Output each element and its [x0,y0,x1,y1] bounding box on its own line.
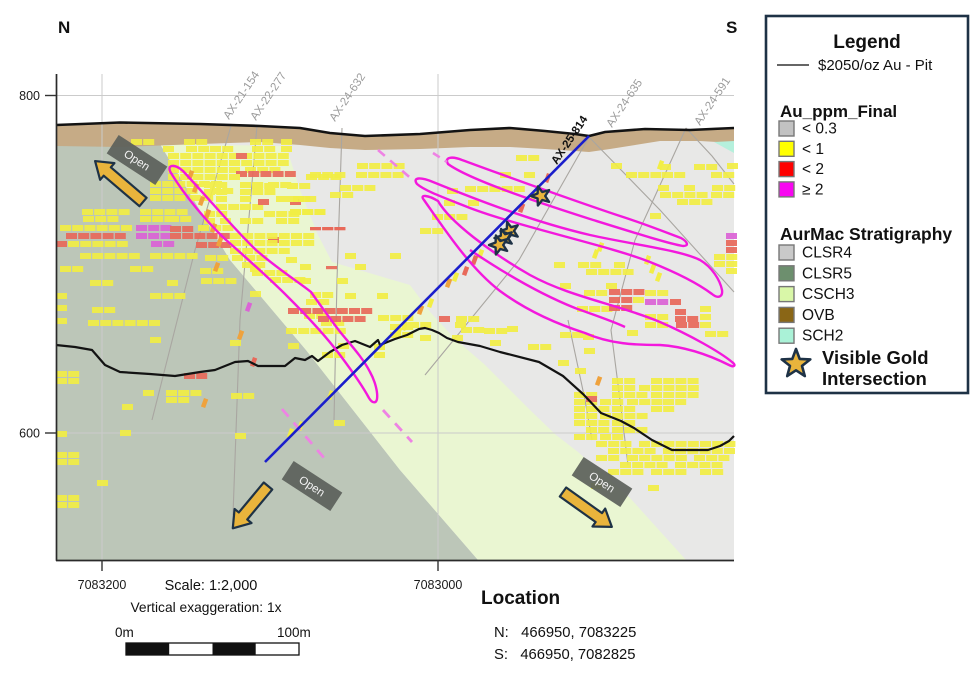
svg-text:OVB: OVB [802,307,835,324]
svg-text:< 0.3: < 0.3 [802,121,837,138]
svg-text:Vertical exaggeration: 1x: Vertical exaggeration: 1x [130,600,281,615]
svg-text:AX-24-632: AX-24-632 [328,71,369,123]
svg-text:< 1: < 1 [802,141,824,158]
svg-text:100m: 100m [277,625,311,640]
svg-text:AX-24-635: AX-24-635 [605,77,646,129]
svg-text:$2050/oz Au - Pit: $2050/oz Au - Pit [818,57,933,74]
svg-text:N: N [58,18,70,37]
svg-text:Legend: Legend [833,32,901,53]
svg-text:Intersection: Intersection [822,368,927,389]
svg-text:Au_ppm_Final: Au_ppm_Final [780,102,897,121]
svg-text:N: 466950, 7083225: N: 466950, 7083225 [494,625,636,641]
svg-text:S: 466950, 7082825: S: 466950, 7082825 [494,647,636,663]
svg-text:Scale: 1:2,000: Scale: 1:2,000 [165,578,258,594]
svg-text:SCH2: SCH2 [802,328,843,345]
svg-text:< 2: < 2 [802,161,824,178]
svg-text:AurMac Stratigraphy: AurMac Stratigraphy [780,224,952,244]
svg-text:7083200: 7083200 [78,578,127,592]
svg-text:AX-24-591: AX-24-591 [693,75,734,127]
svg-text:CLSR5: CLSR5 [802,265,852,282]
svg-text:0m: 0m [115,625,134,640]
svg-text:≥ 2: ≥ 2 [802,181,823,198]
svg-text:600: 600 [19,427,40,441]
svg-text:800: 800 [19,89,40,103]
svg-text:CSCH3: CSCH3 [802,286,855,303]
svg-text:CLSR4: CLSR4 [802,245,852,262]
svg-text:S: S [726,18,737,37]
svg-text:7083000: 7083000 [414,578,463,592]
svg-text:Location: Location [481,588,560,609]
svg-text:Visible Gold: Visible Gold [822,347,929,368]
